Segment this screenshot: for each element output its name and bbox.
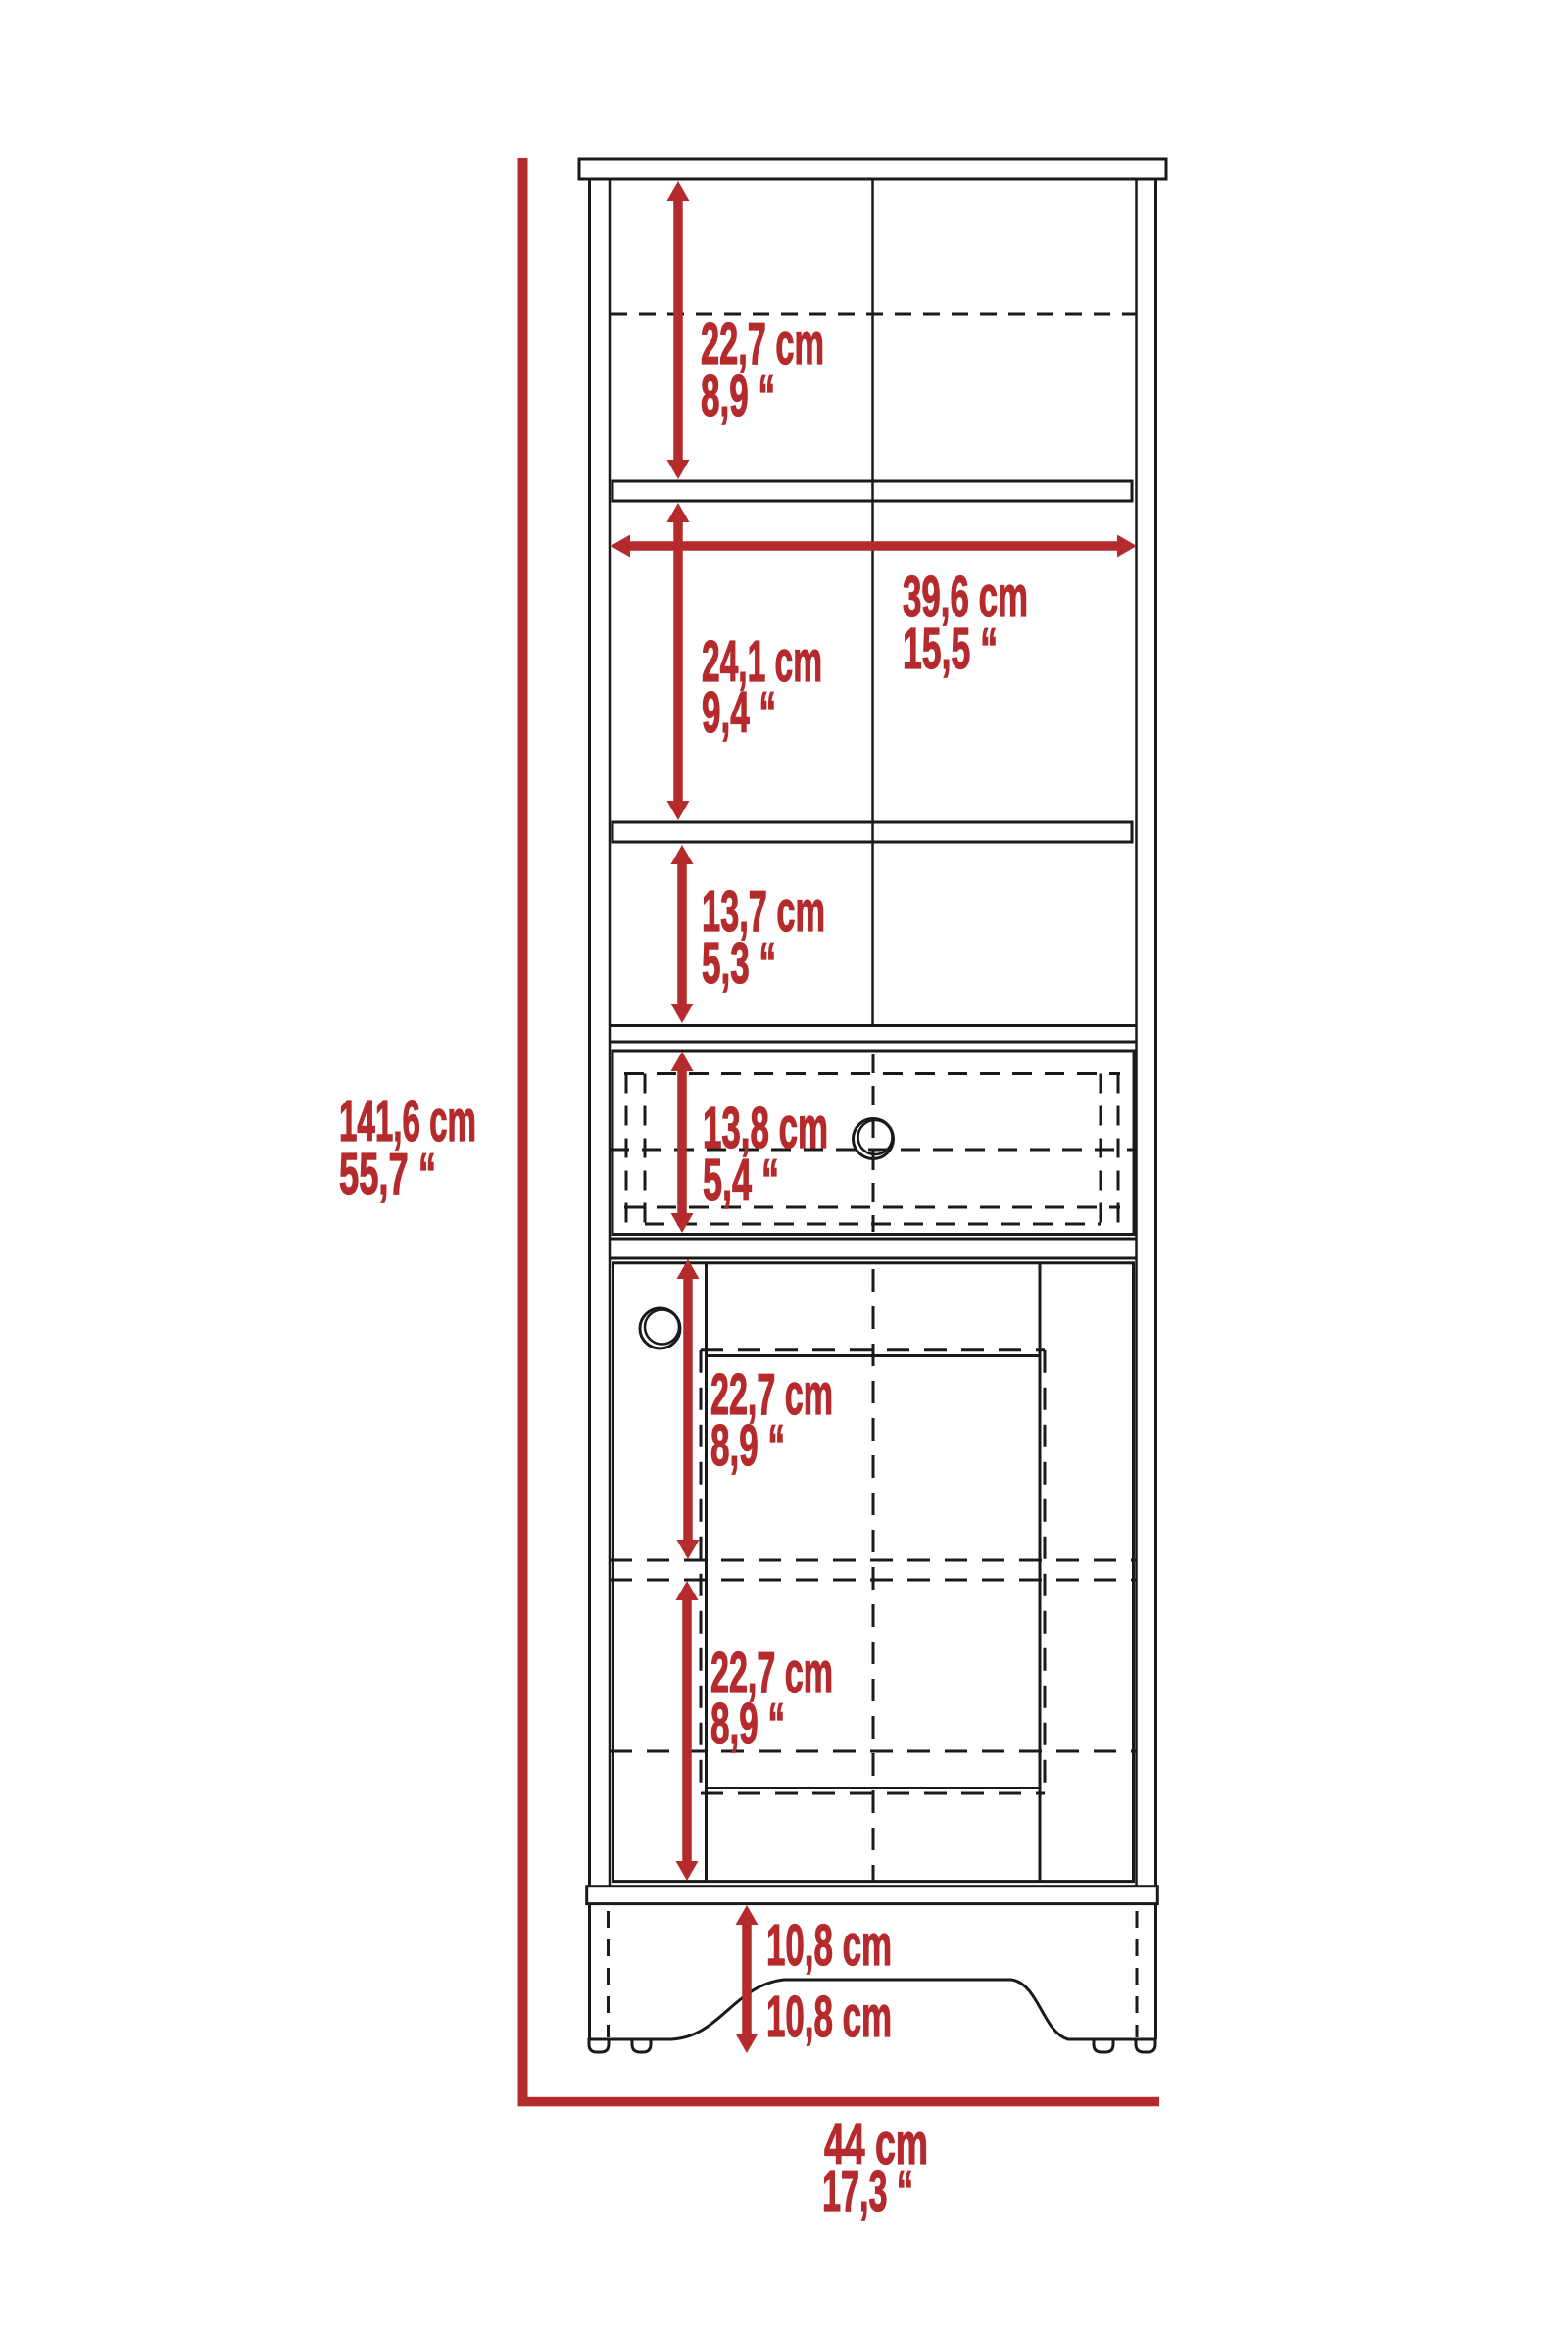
svg-text:10,8 cm: 10,8 cm (766, 1913, 892, 1978)
svg-text:9,4 “: 9,4 “ (702, 680, 776, 745)
svg-text:5,4 “: 5,4 “ (703, 1148, 779, 1212)
svg-text:8,9 “: 8,9 “ (710, 1413, 785, 1478)
svg-text:15,5 “: 15,5 “ (903, 616, 998, 681)
svg-text:5,3 “: 5,3 “ (702, 931, 776, 996)
svg-text:55,7 “: 55,7 “ (339, 1142, 436, 1206)
svg-text:17,3 “: 17,3 “ (822, 2159, 913, 2224)
svg-text:8,9 “: 8,9 “ (710, 1691, 785, 1756)
svg-text:8,9 “: 8,9 “ (701, 364, 775, 428)
svg-text:10,8 cm: 10,8 cm (766, 1984, 892, 2049)
